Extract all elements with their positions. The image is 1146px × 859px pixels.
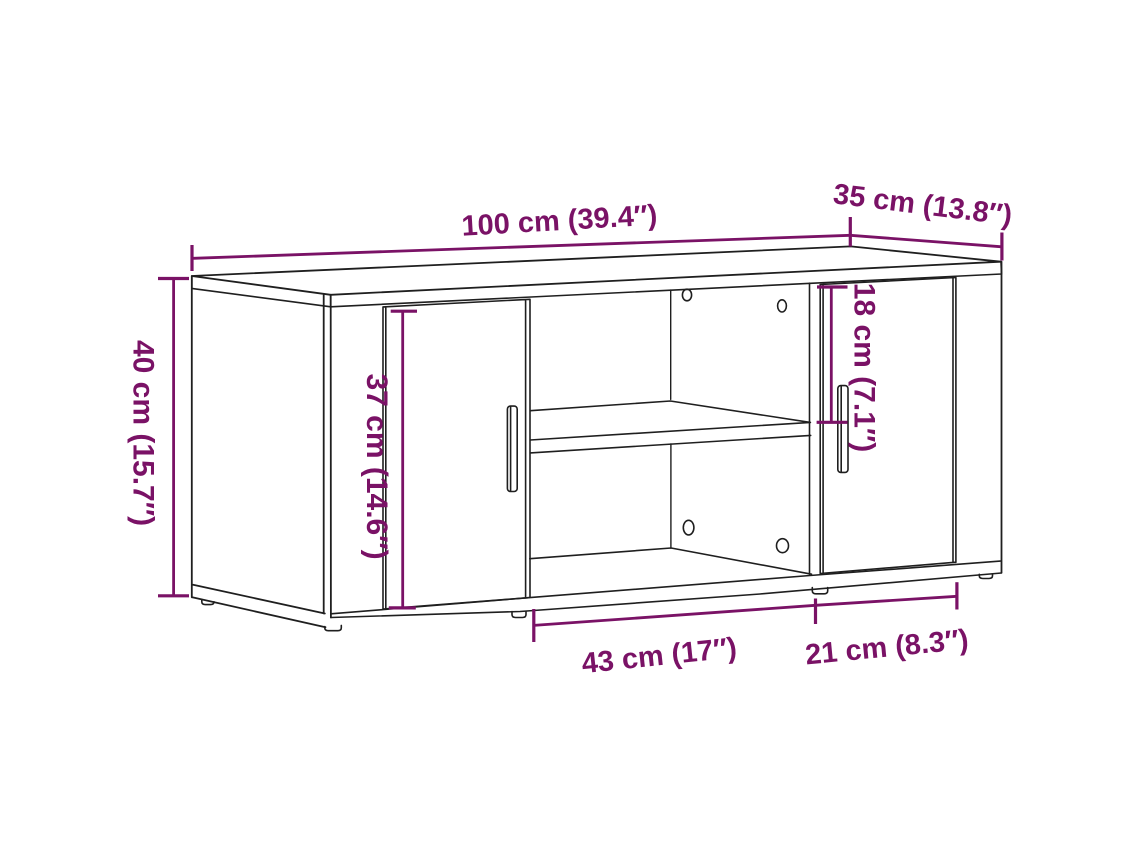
svg-text:40 cm (15.7″): 40 cm (15.7″) [127, 340, 160, 526]
svg-text:37 cm (14.6″): 37 cm (14.6″) [360, 373, 393, 559]
svg-text:18 cm (7.1″): 18 cm (7.1″) [848, 283, 881, 452]
